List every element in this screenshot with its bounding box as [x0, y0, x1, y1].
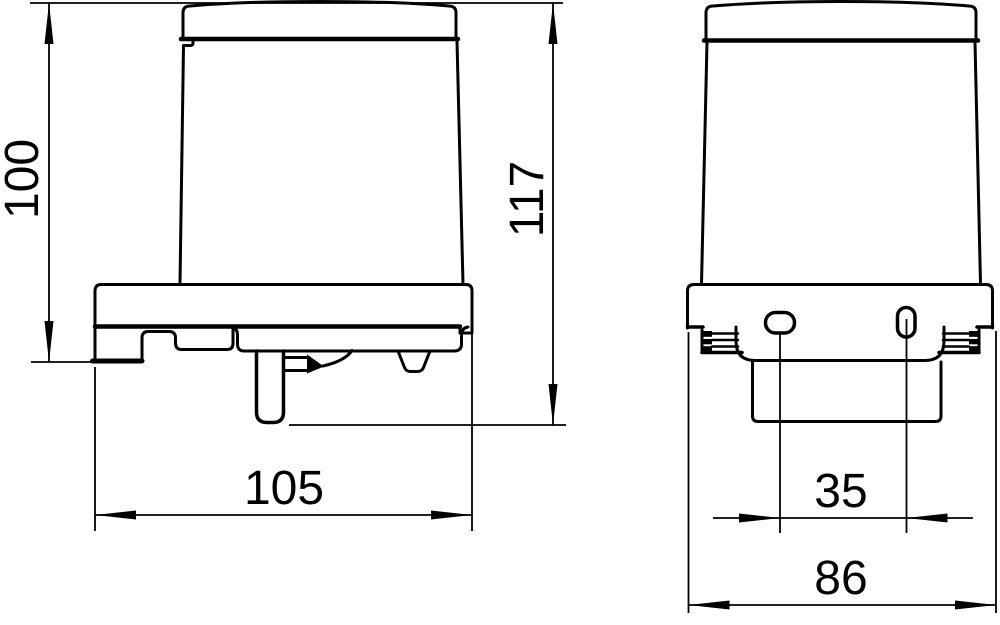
dim-86-arrow-left — [689, 601, 730, 610]
dim-105-label: 105 — [244, 462, 324, 515]
dimension-100: 100 — [0, 3, 95, 362]
retainer-tab — [398, 351, 430, 372]
pump-spout — [257, 351, 284, 423]
front-body-left-edge — [180, 40, 193, 284]
dim-117-label: 117 — [501, 161, 554, 238]
dim-100-arrow-up — [45, 3, 54, 44]
front-body-right-edge — [457, 41, 463, 284]
dim-86-arrow-right — [955, 601, 996, 610]
dim-105-arrow-right — [431, 511, 472, 520]
side-mounting-plate — [688, 285, 993, 329]
dim-35-arrow-right — [907, 514, 948, 523]
dim-100-arrow-down — [45, 321, 54, 362]
front-lid-outline — [183, 2, 456, 40]
dimension-35: 35 — [713, 319, 973, 533]
outlet-lever-arc — [323, 351, 352, 367]
dim-117-arrow-up — [549, 3, 558, 44]
dim-117-arrow-down — [549, 384, 558, 425]
outlet-nozzle-tip — [307, 355, 324, 374]
front-mounting-plate — [95, 285, 472, 328]
front-view — [93, 2, 473, 423]
front-holder-band — [231, 327, 468, 351]
side-body-right-edge — [975, 42, 981, 284]
dim-35-label: 35 — [814, 465, 867, 518]
dim-100-label: 100 — [0, 139, 49, 219]
side-body-left-edge — [702, 42, 708, 284]
side-lid-outline — [706, 2, 976, 41]
front-bracket-profile — [142, 327, 233, 361]
side-view — [688, 2, 993, 422]
dim-105-arrow-left — [95, 511, 136, 520]
dimensions: 100 117 105 35 — [0, 3, 996, 613]
dimension-117: 117 — [289, 3, 566, 425]
dim-86-label: 86 — [814, 552, 867, 605]
dim-35-arrow-left — [739, 514, 780, 523]
technical-drawing-canvas: 100 117 105 35 — [0, 0, 1000, 625]
mounting-slot-horizontal — [766, 313, 795, 334]
